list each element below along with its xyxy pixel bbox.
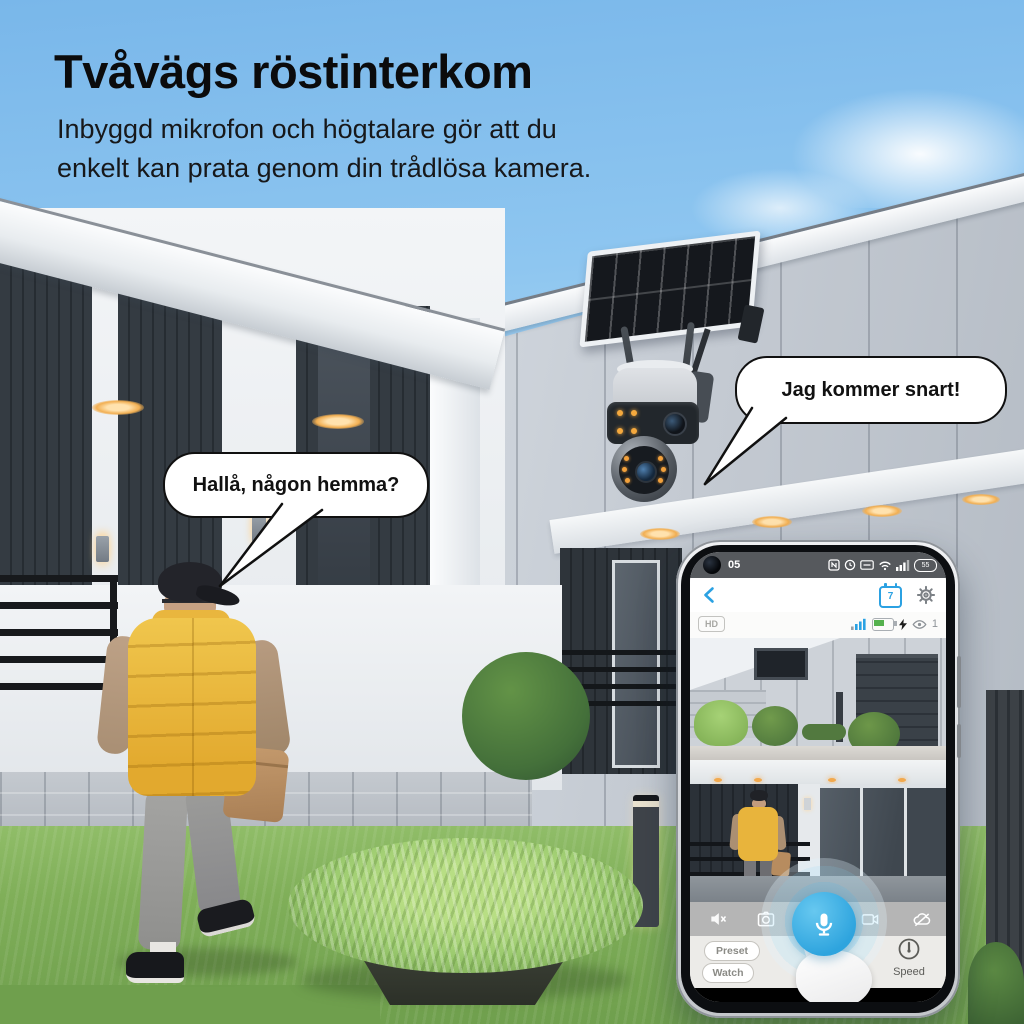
cloud-off-icon (912, 909, 932, 929)
camera-bubble-tail (690, 352, 810, 498)
front-camera-punch-hole (703, 556, 721, 574)
leg (138, 789, 188, 951)
subtitle-line-2: enkelt kan prata genom din trådlösa kame… (57, 149, 591, 188)
speaker-mute-icon (708, 909, 728, 929)
alarm-clock-icon (844, 559, 856, 571)
round-hedge (462, 652, 590, 780)
cellular-signal-icon (896, 559, 910, 571)
ir-led (625, 478, 630, 483)
clock-time: 05 (728, 559, 740, 571)
grass-texture (288, 838, 643, 973)
speed-gauge-icon (897, 937, 921, 961)
battery-percent: 55 (922, 562, 930, 569)
driveway (690, 746, 946, 760)
bush (752, 706, 798, 746)
camera-feed-wide[interactable] (690, 638, 946, 760)
volume-button[interactable] (957, 656, 961, 708)
viewer-count: 1 (932, 618, 938, 630)
camera-signal-icon (851, 618, 867, 630)
battery-fill (874, 620, 884, 626)
ir-led (622, 467, 627, 472)
settings-button[interactable] (915, 584, 937, 606)
ceiling-light (754, 778, 762, 782)
ir-led (631, 428, 637, 434)
app-nav-bar: 7 (690, 578, 946, 613)
playback-calendar-button[interactable]: 7 (879, 586, 902, 608)
ir-led (658, 456, 663, 461)
power-button[interactable] (957, 724, 961, 758)
ceiling-light (862, 505, 902, 517)
ir-led (617, 428, 623, 434)
hedge (802, 724, 846, 740)
calendar-tab (884, 583, 887, 588)
ir-led (617, 410, 623, 416)
phone-screen: 05 55 7 (690, 552, 946, 1002)
viewers-eye-icon (912, 619, 927, 630)
ornamental-grass (288, 838, 643, 973)
calendar-day: 7 (881, 591, 900, 602)
yellow-vest (738, 807, 778, 861)
volte-icon (860, 560, 874, 570)
nfc-icon (828, 559, 840, 571)
ornamental-grass (694, 700, 748, 746)
ir-led (631, 410, 637, 416)
yellow-vest (128, 618, 256, 796)
ceiling-light (312, 414, 364, 429)
watch-button[interactable]: Watch (702, 963, 754, 983)
ir-led (624, 456, 629, 461)
ir-led (658, 478, 663, 483)
speaker-mute-button[interactable] (708, 909, 728, 929)
wall-sconce (804, 798, 811, 810)
page-title: Tvåvägs röstinterkom (54, 44, 532, 99)
stream-status-icons: 1 (851, 617, 938, 631)
ceiling-light (828, 778, 836, 782)
smartphone: 05 55 7 (676, 540, 960, 1018)
visitor-bubble-tail (196, 478, 336, 598)
hand-palm (796, 950, 872, 1002)
battery-tip (894, 621, 897, 626)
window (754, 648, 808, 680)
solar-panel (579, 231, 760, 348)
shoe (126, 952, 184, 983)
page-subtitle: Inbyggd mikrofon och högtalare gör att d… (57, 110, 591, 188)
fixed-lens (663, 412, 687, 436)
preset-button[interactable]: Preset (704, 941, 760, 961)
quality-badge[interactable]: HD (698, 616, 725, 632)
slat-wall (0, 262, 92, 592)
marketing-scene: Tvåvägs röstinterkom Inbyggd mikrofon oc… (0, 0, 1024, 1024)
microphone-icon (810, 910, 838, 938)
vest-zipper (192, 618, 194, 796)
chevron-left-icon (700, 585, 720, 605)
camera-battery-icon (872, 618, 894, 631)
battery-icon: 55 (914, 559, 937, 572)
ceiling-light (962, 494, 1000, 505)
cap (750, 790, 768, 801)
cloud-off-button[interactable] (912, 909, 932, 929)
ceiling-light (898, 778, 906, 782)
ptz-lens (635, 461, 657, 483)
status-bar: 05 55 (690, 552, 946, 578)
entrance-canopy (690, 760, 946, 784)
back-button[interactable] (700, 585, 720, 605)
ceiling-light (714, 778, 722, 782)
camera-ptz-ball (611, 436, 677, 502)
lawn (0, 985, 380, 1024)
ptz-face (619, 446, 669, 494)
stream-info-bar: HD 1 (690, 612, 946, 639)
calendar-tab (895, 583, 898, 588)
talk-microphone-button[interactable] (792, 892, 856, 956)
gear-icon (915, 584, 937, 606)
speed-label: Speed (886, 966, 932, 978)
ceiling-light (92, 400, 144, 415)
bush (968, 942, 1024, 1024)
ir-led (661, 467, 666, 472)
wifi-icon (878, 560, 892, 571)
subtitle-line-1: Inbyggd mikrofon och högtalare gör att d… (57, 110, 591, 149)
status-icons: 55 (828, 558, 937, 572)
charging-bolt-icon (899, 618, 907, 631)
visitor-person (98, 552, 298, 982)
speed-control[interactable]: Speed (886, 937, 932, 978)
